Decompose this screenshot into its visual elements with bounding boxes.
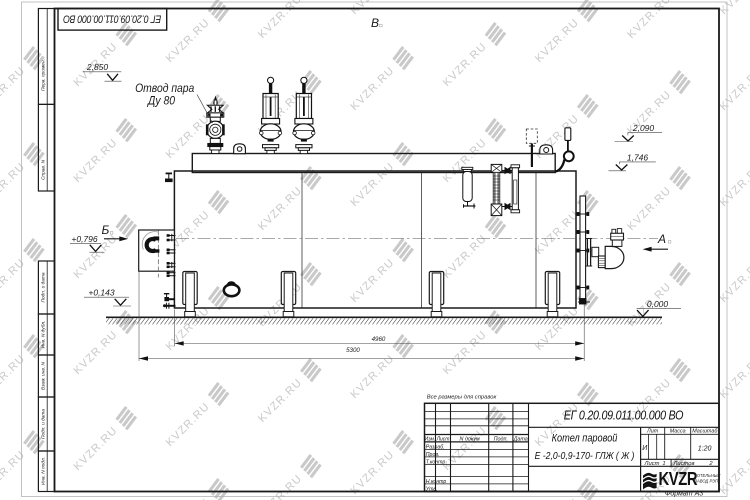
svg-text:В: В (371, 16, 379, 30)
svg-text:KVZR.RU: KVZR.RU (718, 0, 750, 17)
svg-text:Формат А3: Формат А3 (665, 491, 703, 498)
svg-text:KVZR.RU: KVZR.RU (533, 496, 582, 500)
svg-text:Лит: Лит (646, 429, 659, 435)
svg-text:2,090: 2,090 (632, 123, 655, 133)
svg-text:Подп. и дата: Подп. и дата (41, 409, 47, 439)
svg-text:Дата: Дата (513, 436, 528, 442)
svg-text:4960: 4960 (372, 336, 386, 343)
svg-text:Б: Б (102, 223, 110, 237)
svg-text:Н.контр: Н.контр (426, 479, 447, 485)
svg-text:Подп.: Подп. (494, 436, 508, 442)
svg-text:+0,143: +0,143 (88, 288, 115, 298)
svg-text:Т.контр: Т.контр (426, 459, 446, 465)
svg-text:ЗАВОД РЭП: ЗАВОД РЭП (695, 479, 719, 484)
svg-text:2,850: 2,850 (86, 62, 109, 72)
svg-text:Отвод пара: Отвод пара (135, 82, 194, 95)
svg-text:Инв. N дубл.: Инв. N дубл. (41, 321, 47, 349)
svg-text:KVZR.RU: KVZR.RU (718, 64, 750, 113)
svg-text:Лист: Лист (644, 461, 660, 467)
svg-text:Перв. примен.: Перв. примен. (41, 59, 47, 91)
svg-text:KVZR.RU: KVZR.RU (0, 448, 28, 497)
svg-text:Ду 80: Ду 80 (146, 95, 175, 108)
svg-text:Лист: Лист (436, 436, 450, 442)
svg-text:0,000: 0,000 (647, 299, 669, 309)
svg-text:1: 1 (662, 461, 665, 467)
svg-text:KVZR.RU: KVZR.RU (718, 160, 750, 209)
svg-text:Е -2,0-0,9-170- ГЛЖ ( Ж ): Е -2,0-0,9-170- ГЛЖ ( Ж ) (535, 450, 635, 462)
svg-text:Все размеры для справок: Все размеры для справок (427, 394, 497, 400)
svg-text:Справ. N: Справ. N (41, 159, 47, 180)
svg-text:Листов: Листов (672, 461, 694, 467)
svg-text:ЕГ 0.20.09.011.00.000 ВО: ЕГ 0.20.09.011.00.000 ВО (63, 12, 161, 24)
svg-text:KVZR.RU: KVZR.RU (718, 352, 750, 401)
svg-text:N докум: N докум (459, 436, 480, 442)
svg-text:KVZR.RU: KVZR.RU (164, 496, 213, 500)
svg-text:Пров.: Пров. (426, 452, 440, 458)
svg-text:Котел паровой: Котел паровой (552, 433, 618, 445)
svg-text:Утв.: Утв. (426, 486, 438, 492)
svg-text:А: А (657, 232, 666, 246)
svg-text:+0,796: +0,796 (71, 234, 98, 244)
svg-text:KVZR.RU: KVZR.RU (0, 352, 28, 401)
svg-text:KVZR.RU: KVZR.RU (718, 256, 750, 305)
svg-text:5300: 5300 (346, 347, 360, 354)
svg-text:Инв. N подл.: Инв. N подл. (41, 457, 47, 485)
svg-text:Масштаб: Масштаб (692, 429, 718, 435)
svg-text:Изм.: Изм. (425, 436, 436, 442)
svg-text:KVZR.RU: KVZR.RU (718, 448, 750, 497)
svg-text:Разраб.: Разраб. (426, 444, 445, 450)
svg-text:Подп. и дата: Подп. и дата (41, 272, 47, 302)
svg-text:Взам. инв. N: Взам. инв. N (41, 362, 47, 390)
svg-text:KVZR.RU: KVZR.RU (0, 160, 28, 209)
svg-text:ЕГ 0.20.09.011.00.000 ВО: ЕГ 0.20.09.011.00.000 ВО (564, 409, 684, 423)
svg-text:KVZR.RU: KVZR.RU (0, 64, 28, 113)
svg-text:KVZR.RU: KVZR.RU (0, 256, 28, 305)
svg-text:Масса: Масса (670, 429, 686, 435)
svg-text:1,746: 1,746 (627, 152, 649, 162)
svg-text:КОТЕЛЬНЫЙ: КОТЕЛЬНЫЙ (695, 473, 721, 478)
svg-text:1:20: 1:20 (698, 446, 712, 453)
svg-text:KVZR: KVZR (659, 468, 698, 489)
